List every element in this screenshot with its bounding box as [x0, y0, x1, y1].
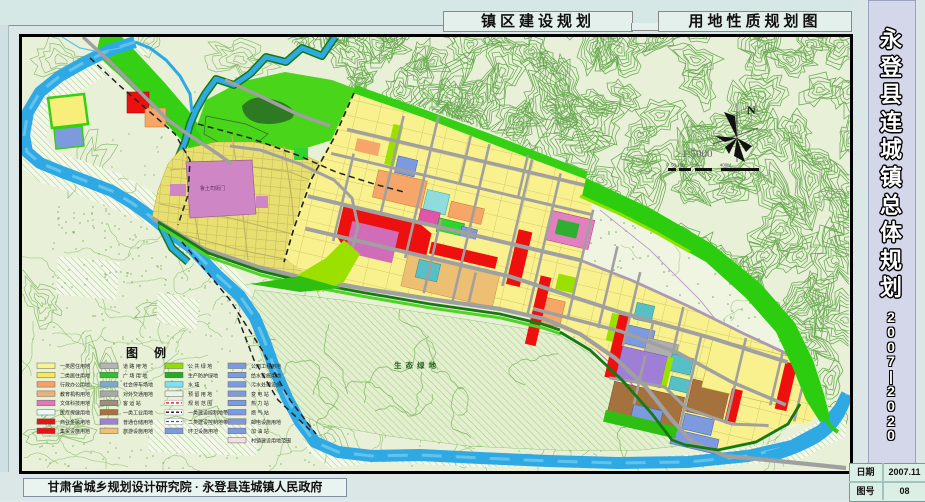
svg-text:规 划 范 围: 规 划 范 围: [188, 400, 212, 407]
svg-text:鲁土司衙门: 鲁土司衙门: [200, 185, 225, 192]
svg-text:水 域: 水 域: [188, 382, 199, 389]
svg-text:预 留 用 地: 预 留 用 地: [188, 391, 212, 398]
svg-text:公 共 绿 地: 公 共 绿 地: [188, 363, 212, 370]
svg-text:生产防护绿地: 生产防护绿地: [188, 372, 218, 379]
svg-text:广 场 用 地: 广 场 用 地: [123, 372, 147, 379]
svg-text:图例: 图例: [126, 345, 182, 360]
svg-text:公用工程用地: 公用工程用地: [251, 363, 281, 370]
svg-text:邮电设施用地: 邮电设施用地: [251, 419, 281, 426]
svg-text:0 50 100 200: 0 50 100 200 400M: [666, 163, 731, 168]
svg-text:二类建设控制地带: 二类建设控制地带: [188, 419, 228, 426]
svg-text:加 油 站: 加 油 站: [251, 428, 269, 435]
svg-text:污水处理设施: 污水处理设施: [251, 382, 281, 389]
svg-text:医疗保健用地: 医疗保健用地: [60, 410, 90, 417]
svg-text:社会停车场地: 社会停车场地: [123, 382, 153, 389]
svg-text:一类建设控制地带: 一类建设控制地带: [188, 410, 228, 417]
svg-text:给水设施用地: 给水设施用地: [251, 372, 281, 379]
svg-text:客 运 站: 客 运 站: [123, 400, 141, 407]
svg-text:商业金融用地: 商业金融用地: [60, 419, 90, 426]
svg-text:对外交通用地: 对外交通用地: [123, 391, 153, 398]
svg-text:二类居住用地: 二类居住用地: [60, 372, 90, 379]
svg-text:热 力 站: 热 力 站: [251, 400, 269, 407]
svg-text:普通仓储用地: 普通仓储用地: [123, 419, 153, 426]
svg-text:生态绿地: 生态绿地: [394, 360, 440, 370]
svg-text:燃 气 站: 燃 气 站: [251, 410, 269, 417]
svg-text:变 电 站: 变 电 站: [251, 391, 269, 398]
svg-text:道 路 用 地: 道 路 用 地: [123, 363, 147, 370]
svg-text:环卫设施用地: 环卫设施用地: [188, 428, 218, 435]
svg-text:文体科技用地: 文体科技用地: [60, 400, 90, 407]
svg-text:一类居住用地: 一类居住用地: [60, 363, 90, 370]
svg-text:集贸设施用地: 集贸设施用地: [60, 428, 90, 435]
svg-text:村镇建设用地范围: 村镇建设用地范围: [251, 437, 291, 444]
svg-text:行政办公用地: 行政办公用地: [60, 382, 90, 389]
svg-text:N: N: [747, 103, 756, 117]
svg-text:一类工业用地: 一类工业用地: [123, 410, 153, 417]
svg-text:1:5000: 1:5000: [682, 148, 713, 160]
svg-text:教育机构用地: 教育机构用地: [60, 391, 90, 398]
svg-text:旅游设施用地: 旅游设施用地: [123, 428, 153, 435]
